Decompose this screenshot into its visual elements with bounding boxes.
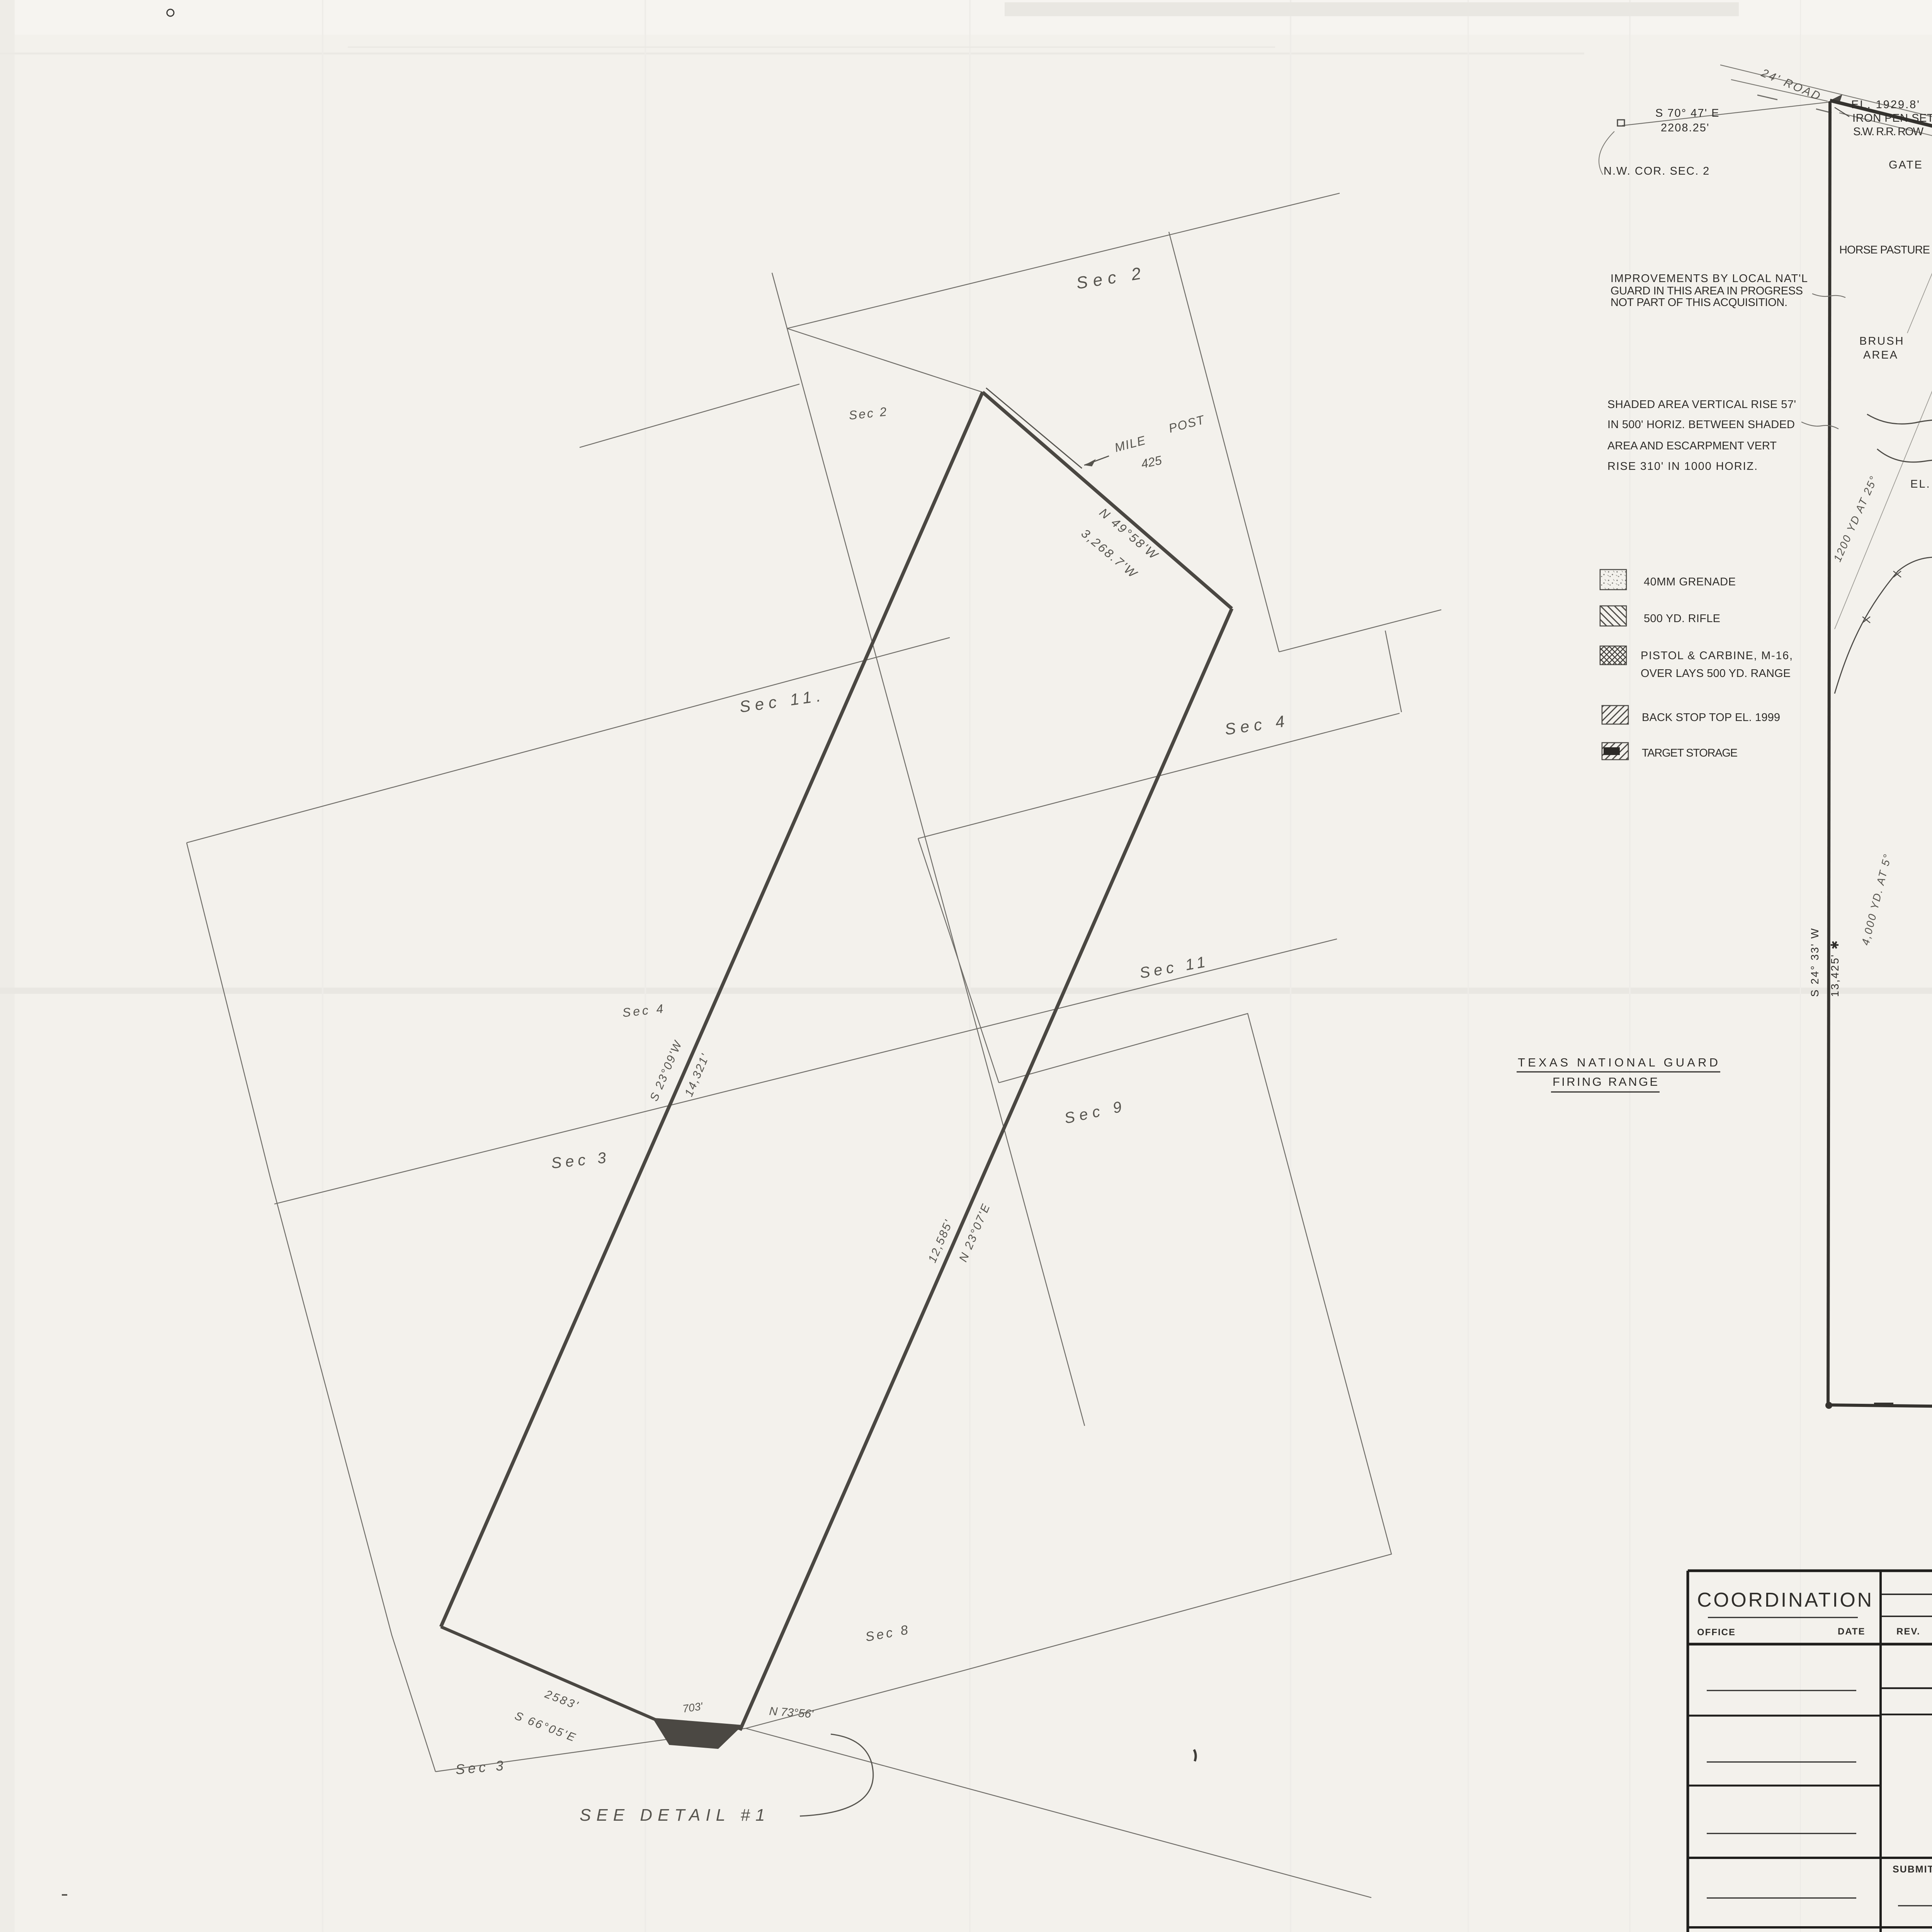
svg-text:BACK STOP TOP EL. 1999: BACK STOP TOP EL. 1999 <box>1642 711 1781 724</box>
svg-text:EL. 2087: EL. 2087 <box>1910 478 1932 490</box>
svg-text:AREA AND ESCARPMENT VERT: AREA AND ESCARPMENT VERT <box>1607 440 1777 452</box>
svg-text:IMPROVEMENTS BY LOCAL NAT'L: IMPROVEMENTS BY LOCAL NAT'L <box>1611 272 1808 285</box>
svg-text:13,425' ✱: 13,425' ✱ <box>1829 939 1841 997</box>
svg-text:HORSE PASTURE: HORSE PASTURE <box>1839 244 1931 256</box>
svg-text:SHADED AREA VERTICAL RISE: SHADED AREA VERTICAL RISE 57' <box>1607 398 1797 411</box>
svg-text:S 24° 33' W: S 24° 33' W <box>1809 927 1821 997</box>
svg-text:500 YD. RIFLE: 500 YD. RIFLE <box>1644 612 1721 625</box>
svg-text:OVER LAYS 500 YD. RANGE: OVER LAYS 500 YD. RANGE <box>1641 667 1791 680</box>
svg-text:GUARD IN THIS AREA IN PRO: GUARD IN THIS AREA IN PROGRESS <box>1611 285 1804 297</box>
svg-text:SEE DETAIL #1: SEE DETAIL #1 <box>580 1806 770 1825</box>
svg-text:PISTOL & CARBINE, M-16,: PISTOL & CARBINE, M-16, <box>1641 650 1793 662</box>
svg-text:2208.25': 2208.25' <box>1661 122 1709 134</box>
svg-text:RISE 310' IN 1000 HORIZ.: RISE 310' IN 1000 HORIZ. <box>1607 460 1758 473</box>
svg-text:FIRING RANGE: FIRING RANGE <box>1553 1075 1659 1088</box>
svg-text:DATE: DATE <box>1838 1626 1866 1637</box>
svg-text:IN 500' HORIZ. BETWEEN SHA: IN 500' HORIZ. BETWEEN SHADED <box>1607 418 1796 431</box>
svg-text:S.W. R.R. ROW: S.W. R.R. ROW <box>1853 126 1925 138</box>
svg-text:OFFICE: OFFICE <box>1697 1627 1736 1638</box>
svg-text:BRUSH: BRUSH <box>1859 335 1905 347</box>
svg-text:REV.: REV. <box>1896 1626 1920 1637</box>
svg-text:COORDINATION: COORDINATION <box>1697 1589 1872 1611</box>
svg-text:AREA: AREA <box>1863 349 1898 361</box>
svg-text:S 70° 47' E: S 70° 47' E <box>1655 107 1720 119</box>
svg-text:TARGET STORAGE: TARGET STORAGE <box>1642 747 1738 759</box>
svg-text:GATE: GATE <box>1889 159 1923 171</box>
svg-text:SUBMITTED: SUBMITTED <box>1893 1864 1932 1875</box>
svg-text:IRON PEN SET IN CORNER IN: IRON PEN SET IN CORNER IN <box>1852 112 1932 124</box>
svg-text:EL. 1929.8': EL. 1929.8' <box>1851 99 1920 111</box>
svg-text:N.W. COR. SEC. 2: N.W. COR. SEC. 2 <box>1604 165 1710 177</box>
svg-text:TEXAS NATIONAL GUARD: TEXAS NATIONAL GUARD <box>1518 1056 1719 1069</box>
svg-text:40MM GRENADE: 40MM GRENADE <box>1644 576 1736 588</box>
svg-text:NOT PART OF THIS ACQUISITI: NOT PART OF THIS ACQUISITION. <box>1611 296 1788 309</box>
